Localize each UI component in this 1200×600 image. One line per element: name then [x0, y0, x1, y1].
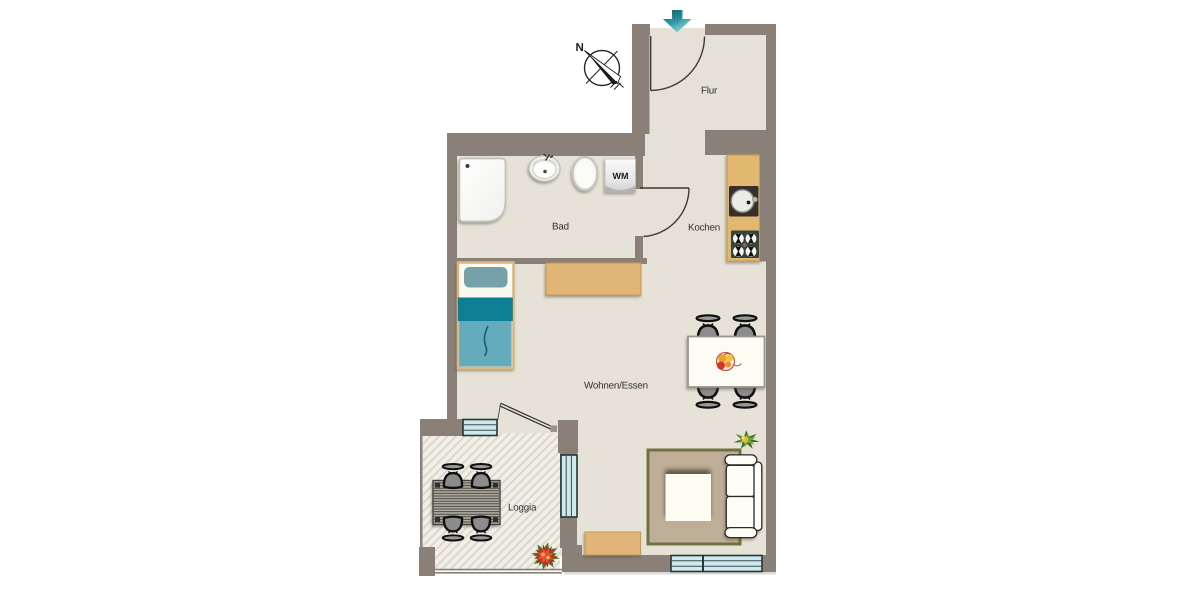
- svg-text:Flur: Flur: [701, 86, 718, 97]
- svg-text:Wohnen/Essen: Wohnen/Essen: [584, 381, 648, 392]
- svg-text:WM: WM: [613, 171, 629, 181]
- svg-text:Loggia: Loggia: [508, 503, 537, 514]
- svg-text:N: N: [576, 42, 584, 54]
- svg-text:Kochen: Kochen: [688, 223, 720, 234]
- svg-text:Bad: Bad: [552, 222, 569, 233]
